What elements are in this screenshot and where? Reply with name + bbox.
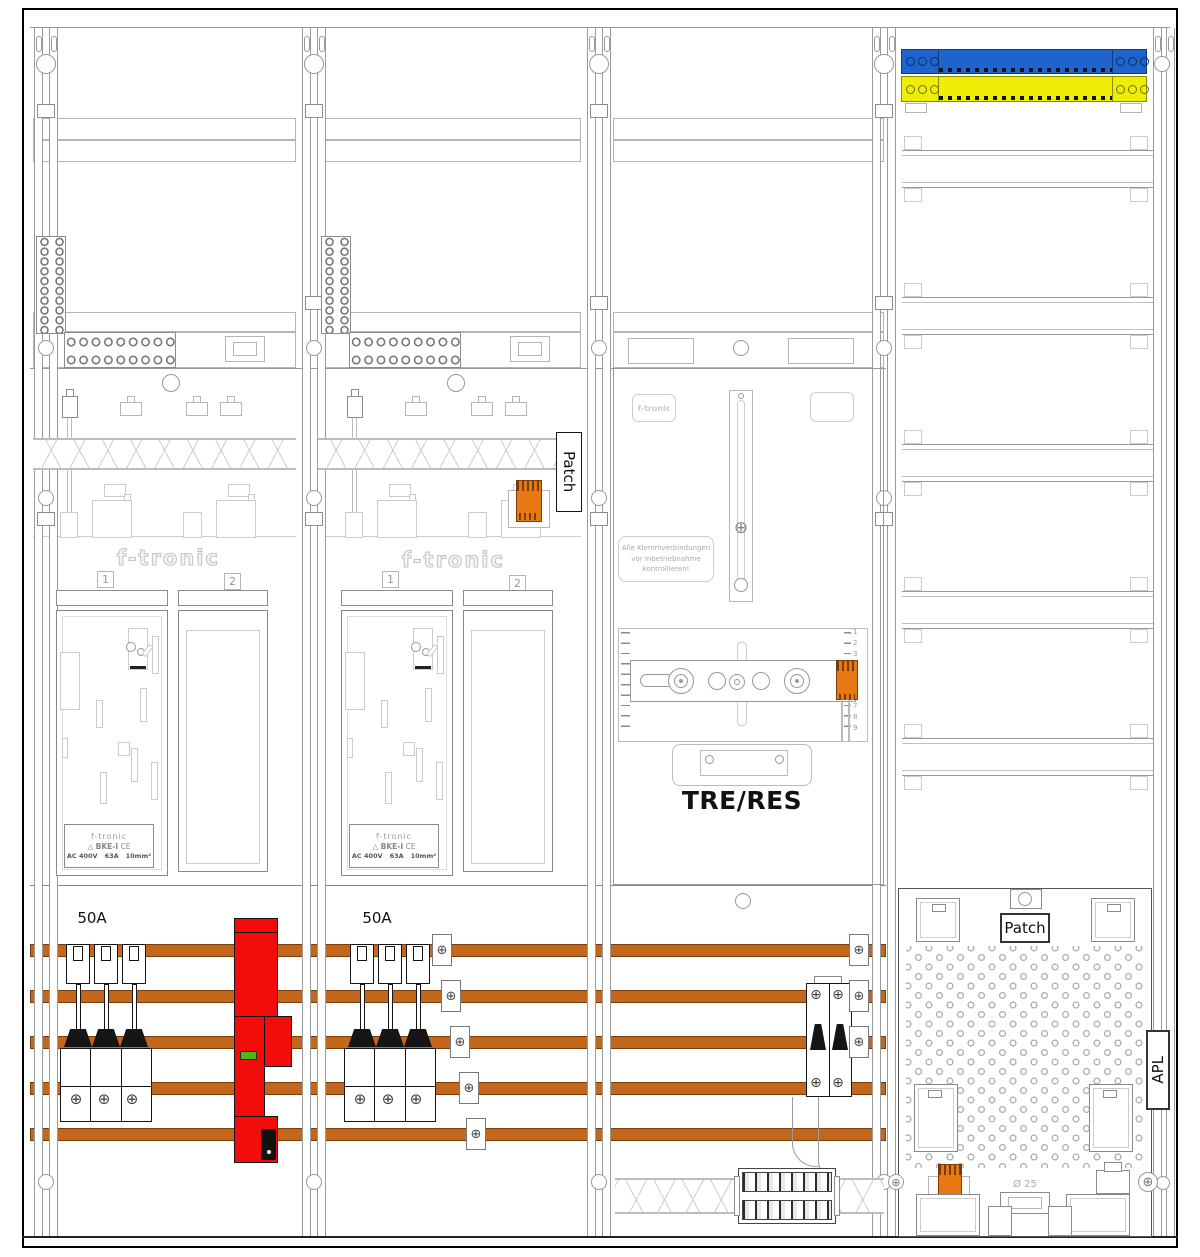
bke-current: 63A xyxy=(390,852,404,860)
rail-hole xyxy=(306,490,322,506)
meter-pos-text: 2 xyxy=(229,575,236,588)
frame-band xyxy=(613,118,884,140)
cable-plug xyxy=(62,396,78,418)
ce-mark: CE xyxy=(406,842,416,851)
bke-slot xyxy=(100,772,107,804)
bke-slot xyxy=(140,688,147,722)
din-corner-tab xyxy=(904,283,922,297)
mount-flag xyxy=(104,484,126,497)
frame-band xyxy=(33,312,296,332)
apl-cutout-slot xyxy=(1107,904,1121,912)
cable-plug-nub xyxy=(66,389,74,397)
busbar-terminal-clip: ⊕ xyxy=(459,1072,479,1104)
brand-logo-text: f-tronic xyxy=(402,548,505,572)
brand-logo-field1: f-tronic xyxy=(96,546,241,570)
mount-flag-tab xyxy=(124,494,131,501)
frame-band xyxy=(33,118,296,140)
apl-bottom-square xyxy=(988,1206,1012,1236)
busbar-terminal-clip: ⊕ xyxy=(450,1026,470,1058)
din-corner-tab xyxy=(904,136,922,150)
neutral-rail-hole xyxy=(918,57,927,66)
pe-rail-hole xyxy=(918,85,927,94)
din-corner-tab xyxy=(1130,724,1148,738)
bke-slot xyxy=(416,748,423,782)
screw-icon: ⊕ xyxy=(446,989,457,1004)
apl-connector-contacts xyxy=(939,1165,961,1175)
top-frame-line xyxy=(30,27,1170,28)
wire-terminal-block-vertical xyxy=(321,236,351,334)
bke-voltage: AC 400V xyxy=(67,852,98,860)
fuse-rating-text: 50A xyxy=(362,909,391,927)
rail-foot xyxy=(37,512,55,526)
fuse-body-line xyxy=(344,1086,436,1087)
rail-slot xyxy=(1155,36,1161,52)
rail-slot xyxy=(319,36,325,52)
rj45-jack-outline xyxy=(405,402,427,416)
patch-label-text: Patch xyxy=(1004,919,1045,937)
terminal-strip-row xyxy=(742,1172,832,1192)
screw-icon: ⊕ xyxy=(731,520,751,540)
bke-screw xyxy=(126,642,136,652)
fuse-body-divider xyxy=(121,1048,122,1122)
din-corner-tab xyxy=(1130,577,1148,591)
apl-side-screw: ⊕ xyxy=(888,1174,904,1190)
tre-connector-contacts xyxy=(837,661,857,671)
fuse-stem xyxy=(416,984,421,1031)
screw-icon: ⊕ xyxy=(464,1081,475,1096)
screw-icon: ⊕ xyxy=(471,1127,482,1142)
din-corner-tab xyxy=(904,776,922,790)
bke-spec-line: AC 400V 63A 10mm² xyxy=(352,852,436,860)
tre-screw-dot xyxy=(795,679,799,683)
rail-foot xyxy=(37,104,55,118)
din-corner-tab xyxy=(1130,283,1148,297)
brand-badge-text: f-tronic xyxy=(637,404,670,413)
fuse-body xyxy=(344,1048,436,1122)
rail-foot xyxy=(305,104,323,118)
warning-box: Alle Klemmverbindungen vor Inbetriebnahm… xyxy=(618,536,714,582)
mount-flag xyxy=(389,484,411,497)
bke-voltage: AC 400V xyxy=(352,852,383,860)
bke-brand: f-tronic xyxy=(91,832,127,841)
rail-hole xyxy=(874,54,894,74)
apl-label-box: APL xyxy=(1146,1030,1170,1110)
screw-icon: ⊕ xyxy=(854,989,865,1004)
rail-hole xyxy=(38,490,54,506)
terminal-strip-row xyxy=(742,1200,832,1220)
din-rail-row xyxy=(902,591,1153,629)
din-corner-tab xyxy=(904,482,922,496)
rj45-jack-notch xyxy=(227,396,235,403)
cable-plug xyxy=(347,396,363,418)
fuse-stem xyxy=(132,984,137,1031)
rail-slot xyxy=(36,36,42,52)
tre-bracket-inner xyxy=(700,750,788,776)
mount-flag-tab xyxy=(248,494,255,501)
neutral-rail-hole xyxy=(906,57,915,66)
fuse-rating-text: 50A xyxy=(77,909,106,927)
bke-slot xyxy=(436,762,443,800)
apl-bottom-cutout xyxy=(1066,1194,1130,1236)
screw-icon: ⊕ xyxy=(830,988,846,1002)
bke-type-label: f-tronic △ BKE-I CE AC 400V 63A 10mm² xyxy=(64,824,154,868)
mount-bracket xyxy=(233,342,257,356)
bke-slot xyxy=(425,688,432,722)
frame-rail xyxy=(602,28,611,1236)
meter-bay-top-strip xyxy=(56,590,168,606)
fuse-top-notch xyxy=(413,946,423,961)
rail-slot xyxy=(304,36,310,52)
pe-rail-hole xyxy=(1128,85,1137,94)
bke-slot xyxy=(118,742,130,756)
bke-slot xyxy=(60,652,80,710)
bke-contact xyxy=(130,666,146,669)
neutral-rail-hole xyxy=(930,57,939,66)
bke-type-label: f-tronic △ BKE-I CE AC 400V 63A 10mm² xyxy=(349,824,439,868)
bke-slot xyxy=(131,748,138,782)
sls-switch-cap xyxy=(234,918,278,933)
rj45-jack-outline xyxy=(505,402,527,416)
knockout-diameter-label: Ø 25 xyxy=(998,1178,1052,1190)
din-rail-row xyxy=(902,444,1153,482)
fuse-stem xyxy=(76,984,81,1031)
apl-step-bracket-top xyxy=(1104,1162,1122,1172)
screw-icon: ⊕ xyxy=(380,1092,396,1107)
sls-switch-lower xyxy=(234,1016,265,1117)
patch-connector-contacts xyxy=(517,481,541,491)
wire-terminal-block-vertical xyxy=(36,236,66,334)
bke-model-line: △ BKE-I CE xyxy=(87,842,130,851)
neutral-rail-hole xyxy=(1140,57,1149,66)
meter-position-2-label: 2 xyxy=(224,573,241,590)
screw-icon: ⊕ xyxy=(854,943,865,958)
din-corner-tab xyxy=(1130,629,1148,643)
tre-screw-dot xyxy=(679,679,683,683)
bke-model: BKE-I xyxy=(96,842,119,851)
bke-slot xyxy=(403,742,415,756)
wire-terminal-block-horizontal xyxy=(349,332,461,368)
screw-icon: ⊕ xyxy=(830,1076,846,1090)
apl-latch-screw xyxy=(1018,892,1032,906)
din-corner-tab xyxy=(1130,335,1148,349)
slot-hole xyxy=(734,578,748,592)
din-rail-row xyxy=(902,150,1153,188)
rail-hole xyxy=(876,340,892,356)
fuse-top-notch xyxy=(357,946,367,961)
cable-plug-nub xyxy=(351,389,359,397)
neutral-rail-hole xyxy=(1116,57,1125,66)
bke-wire: 10mm² xyxy=(411,852,436,860)
apl-step-bracket xyxy=(1096,1170,1130,1194)
rail-hole xyxy=(38,1174,54,1190)
frame-band xyxy=(318,312,581,332)
tre-bracket-hole xyxy=(705,755,714,764)
tre-connector-wire xyxy=(848,700,850,742)
knockout-slot-inner xyxy=(1008,1197,1042,1209)
rail-slot xyxy=(51,36,57,52)
din-rail-row xyxy=(902,738,1153,776)
ce-mark: CE xyxy=(121,842,131,851)
din-rail-row xyxy=(902,297,1153,335)
frame-band xyxy=(613,140,884,162)
fuse-top-notch xyxy=(73,946,83,961)
screw-icon: ⊕ xyxy=(455,1035,466,1050)
meter-bay-top-strip xyxy=(341,590,453,606)
rail-hole xyxy=(36,54,56,74)
screw-icon: ⊕ xyxy=(808,1076,824,1090)
neutral-rail-hole xyxy=(1128,57,1137,66)
slot-hole xyxy=(738,393,744,399)
apl-bottom-square xyxy=(1048,1206,1072,1236)
recycle-triangle-icon: △ xyxy=(87,842,93,851)
bke-contact xyxy=(415,666,431,669)
tre-hole xyxy=(708,672,726,690)
din-corner-tab xyxy=(904,724,922,738)
meter-pos-text: 1 xyxy=(387,573,394,586)
cabinet-diagram: Patch f-tronic 1 2 f-tronic △ BKE-I CE A… xyxy=(0,0,1200,1257)
rj45-jack-outline xyxy=(120,402,142,416)
bke-slot xyxy=(96,700,103,728)
bke-slot xyxy=(381,700,388,728)
fuse-rating-label: 50A xyxy=(355,910,399,926)
busbar-n xyxy=(30,1082,886,1095)
busbar-terminal-clip: ⊕ xyxy=(849,934,869,966)
busbar-pe xyxy=(30,1128,886,1141)
busbar-panel-top-line xyxy=(30,885,886,886)
rj45-jack-outline xyxy=(220,402,242,416)
mount-bracket xyxy=(788,338,854,364)
terminal-strip-end xyxy=(734,1176,740,1216)
frame-rail xyxy=(587,28,596,1236)
rail-hole xyxy=(304,54,324,74)
rail-foot xyxy=(590,104,608,118)
sls-switch-side-module xyxy=(264,1016,292,1067)
screw-icon: ⊕ xyxy=(124,1092,140,1107)
frame-band xyxy=(318,140,581,162)
rail-foot xyxy=(875,296,893,310)
din-corner-tab xyxy=(904,577,922,591)
bke-spec-line: AC 400V 63A 10mm² xyxy=(67,852,151,860)
rail-foot xyxy=(590,296,608,310)
meter-position-1-label: 1 xyxy=(97,571,114,588)
rail-slot xyxy=(589,36,595,52)
fuse-top-notch xyxy=(129,946,139,961)
tre-hole xyxy=(752,672,770,690)
tre-scale-number: 1 xyxy=(853,628,857,636)
mount-box xyxy=(216,500,256,538)
tre-connector-wire xyxy=(841,700,843,742)
tre-scale-number: 2 xyxy=(853,639,857,647)
screw-icon: ⊕ xyxy=(68,1092,84,1107)
warning-line1: Alle Klemmverbindungen xyxy=(622,543,710,554)
din-corner-tab xyxy=(904,430,922,444)
apl-patch-label: Patch xyxy=(1000,913,1050,943)
din-corner-tab xyxy=(904,335,922,349)
rail-foot xyxy=(875,104,893,118)
apl-bottom-cutout xyxy=(916,1194,980,1236)
pe-rail-contacts xyxy=(939,96,1112,100)
fuse-body-divider xyxy=(405,1048,406,1122)
rail-hole xyxy=(591,490,607,506)
busbar-l1 xyxy=(30,944,886,957)
pe-rail-hole xyxy=(930,85,939,94)
rail-foot xyxy=(905,103,927,113)
tre-scale-left xyxy=(621,632,630,736)
rail-foot xyxy=(305,512,323,526)
truss-beam xyxy=(318,438,581,470)
frame-rail xyxy=(317,28,326,1236)
pe-rail-hole xyxy=(906,85,915,94)
fuse-body xyxy=(60,1048,152,1122)
rail-slot xyxy=(874,36,880,52)
mount-bracket xyxy=(518,342,542,356)
screw-icon: ⊕ xyxy=(808,988,824,1002)
apl-cutout-slot xyxy=(932,904,946,912)
apl-cutout-slot xyxy=(928,1090,942,1098)
fuse-body-divider xyxy=(90,1048,91,1122)
meter-bay-2-inner xyxy=(471,630,545,864)
tre-center-screw-dot xyxy=(734,679,740,685)
truss-beam xyxy=(33,438,296,470)
rail-foot xyxy=(1120,103,1142,113)
busbar-terminal-clip: ⊕ xyxy=(466,1118,486,1150)
bke-slot xyxy=(345,652,365,710)
rail-hole xyxy=(591,1174,607,1190)
mount-box xyxy=(60,512,78,538)
din-corner-tab xyxy=(904,188,922,202)
bke-slot xyxy=(347,738,353,758)
busbar-terminal-clip: ⊕ xyxy=(432,934,452,966)
din-corner-tab xyxy=(904,629,922,643)
rail-hole xyxy=(38,340,54,356)
fuse-stem xyxy=(104,984,109,1031)
brand-logo-field2: f-tronic xyxy=(381,548,526,572)
fuse-rating-label: 50A xyxy=(70,910,114,926)
rj45-jack-outline xyxy=(471,402,493,416)
meter-bay-top-strip xyxy=(463,590,553,606)
warning-line2: vor Inbetriebnahme xyxy=(631,554,700,565)
din-corner-tab xyxy=(1130,776,1148,790)
bke-slot xyxy=(62,738,68,758)
meter-bay-2-inner xyxy=(186,630,260,864)
mount-bracket xyxy=(628,338,694,364)
screw-icon: ⊕ xyxy=(891,1176,900,1189)
tre-res-text: TRE/RES xyxy=(682,786,802,815)
rail-slot xyxy=(604,36,610,52)
knockout-diameter-text: Ø 25 xyxy=(1013,1179,1037,1190)
frame-rail xyxy=(887,28,896,1236)
bke-screw xyxy=(411,642,421,652)
rj45-jack-notch xyxy=(478,396,486,403)
pe-rail-divider xyxy=(1112,76,1113,102)
meter-pos-text: 1 xyxy=(102,573,109,586)
neutral-rail-divider xyxy=(1112,49,1113,74)
tre-bracket-hole xyxy=(775,755,784,764)
mount-box xyxy=(345,512,363,538)
rail-hole xyxy=(306,340,322,356)
fuse-top-notch xyxy=(101,946,111,961)
sls-toggle-dot xyxy=(267,1150,271,1154)
rail-foot xyxy=(590,512,608,526)
screw-icon: ⊕ xyxy=(352,1092,368,1107)
fuse-stem xyxy=(360,984,365,1031)
mount-box xyxy=(183,512,202,538)
fuse-stem xyxy=(388,984,393,1031)
fuse-top-notch xyxy=(385,946,395,961)
busbar-terminal-clip: ⊕ xyxy=(849,980,869,1012)
rj45-jack-notch xyxy=(512,396,520,403)
bke-brand: f-tronic xyxy=(376,832,412,841)
mount-flag xyxy=(228,484,250,497)
bke-slot xyxy=(151,762,158,800)
din-corner-tab xyxy=(1130,136,1148,150)
breaker-wire xyxy=(792,1097,818,1167)
meter-bay-top-strip xyxy=(178,590,268,606)
rj45-jack-outline xyxy=(186,402,208,416)
meter-position-1-label: 1 xyxy=(382,571,399,588)
recycle-triangle-icon: △ xyxy=(372,842,378,851)
mount-box xyxy=(377,500,417,538)
pe-rail-hole xyxy=(1116,85,1125,94)
patch-label-text: Patch xyxy=(560,451,578,492)
pe-rail-hole xyxy=(1140,85,1149,94)
panel-hole xyxy=(447,374,465,392)
fuse-body-line xyxy=(60,1086,152,1087)
rail-hole xyxy=(591,340,607,356)
bke-current: 63A xyxy=(105,852,119,860)
frame-rail xyxy=(302,28,311,1236)
frame-band xyxy=(318,118,581,140)
tre-res-label: TRE/RES xyxy=(650,786,834,814)
bke-slot xyxy=(152,636,159,674)
rail-slot xyxy=(1168,36,1174,52)
frame-band xyxy=(33,140,296,162)
warning-line3: kontrollieren! xyxy=(643,564,690,575)
brand-logo-text: f-tronic xyxy=(117,546,220,570)
sls-indicator-led xyxy=(240,1051,257,1060)
apl-label-text: APL xyxy=(1149,1056,1167,1084)
tre-scale-number: 3 xyxy=(853,650,857,658)
terminal-strip-end xyxy=(834,1176,840,1216)
vertical-slot xyxy=(737,400,745,586)
brand-badge: f-tronic xyxy=(632,394,676,422)
rj45-jack-notch xyxy=(193,396,201,403)
sls-toggle-handle[interactable] xyxy=(261,1129,276,1160)
screw-icon: ⊕ xyxy=(1143,1175,1154,1190)
patch-connector-teeth xyxy=(519,513,539,520)
panel-hole xyxy=(735,893,751,909)
bke-wire: 10mm² xyxy=(126,852,151,860)
blank-badge xyxy=(810,392,854,422)
bke-model-line: △ BKE-I CE xyxy=(372,842,415,851)
busbar-terminal-clip: ⊕ xyxy=(849,1026,869,1058)
tre-scale-number: 7 xyxy=(853,702,857,710)
rail-hole xyxy=(1156,1176,1170,1190)
din-corner-tab xyxy=(1130,188,1148,202)
neutral-rail-contacts xyxy=(939,68,1112,72)
bke-slot xyxy=(437,636,444,674)
wire-terminal-block-horizontal xyxy=(64,332,176,368)
din-corner-tab xyxy=(1130,482,1148,496)
screw-icon: ⊕ xyxy=(96,1092,112,1107)
rj45-jack-notch xyxy=(127,396,135,403)
frame-rail xyxy=(34,28,43,1236)
busbar-terminal-clip: ⊕ xyxy=(441,980,461,1012)
mount-box xyxy=(468,512,487,538)
sls-switch-body xyxy=(234,932,278,1017)
apl-side-screw: ⊕ xyxy=(1138,1172,1158,1192)
din-corner-tab xyxy=(1130,430,1148,444)
